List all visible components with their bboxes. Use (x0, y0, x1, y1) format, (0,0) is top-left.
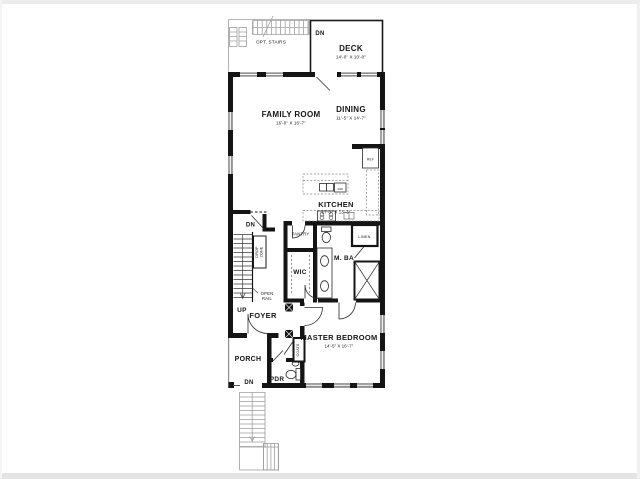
kitchen-sink (327, 184, 334, 192)
dining-label: DINING (336, 105, 366, 114)
porch-label: PORCH (235, 356, 262, 363)
floor-plan: OPT. STAIRS DN DECK 14'-0" X 10'-0" (0, 0, 640, 479)
wic-label: WIC (293, 269, 307, 276)
toilet-bowl (322, 232, 330, 242)
open-rail-label-line2: RAIL (262, 296, 273, 301)
dining-dims: 11'-5" X 14'-7" (336, 116, 366, 121)
deck-down-label: DN (315, 31, 324, 37)
pdr-toilet-bowl (286, 370, 296, 378)
deck-dims: 14'-0" X 10'-0" (336, 55, 366, 60)
pantry-label: PANTRY (292, 232, 310, 237)
drop-zone: DROP ZONE (254, 236, 267, 268)
toilet-tank (322, 227, 332, 232)
pdr-label: PDR (270, 376, 285, 383)
drop-zone-label-line2: ZONE (260, 246, 264, 257)
porch-down-label: DN (244, 380, 253, 386)
linen-label: LINEN (358, 235, 370, 239)
foyer-label: FOYER (249, 311, 277, 320)
opt-stairs-label: OPT. STAIRS (256, 40, 286, 45)
coats-label: COATS (296, 343, 300, 356)
kitchen-label: KITCHEN (318, 200, 353, 209)
deck-label: DECK (339, 44, 363, 53)
pdr-toilet-tank (296, 369, 301, 381)
stairs-up-label: UP (237, 307, 247, 314)
master-bath-label: M. BA (334, 255, 354, 262)
dishwasher-label: DW (338, 187, 343, 191)
refrigerator-label: REF (367, 158, 374, 162)
vanity-sink (321, 281, 329, 292)
family-room-dims: 16'-0" X 16'-7" (276, 121, 306, 126)
drop-zone-label-line1: DROP (255, 246, 259, 258)
kitchen-dims: 17'-1" X 13'-3" (322, 210, 351, 215)
basement-down-label: DN (246, 223, 255, 229)
family-room-label: FAMILY ROOM (262, 110, 321, 119)
kitchen-sink (320, 184, 327, 192)
master-bedroom-dims: 14'-5" X 16'-7" (325, 344, 354, 349)
master-bedroom-label: MASTER BEDROOM (300, 333, 377, 342)
deck: DN DECK 14'-0" X 10'-0" (311, 21, 383, 74)
vanity-sink (321, 256, 329, 267)
